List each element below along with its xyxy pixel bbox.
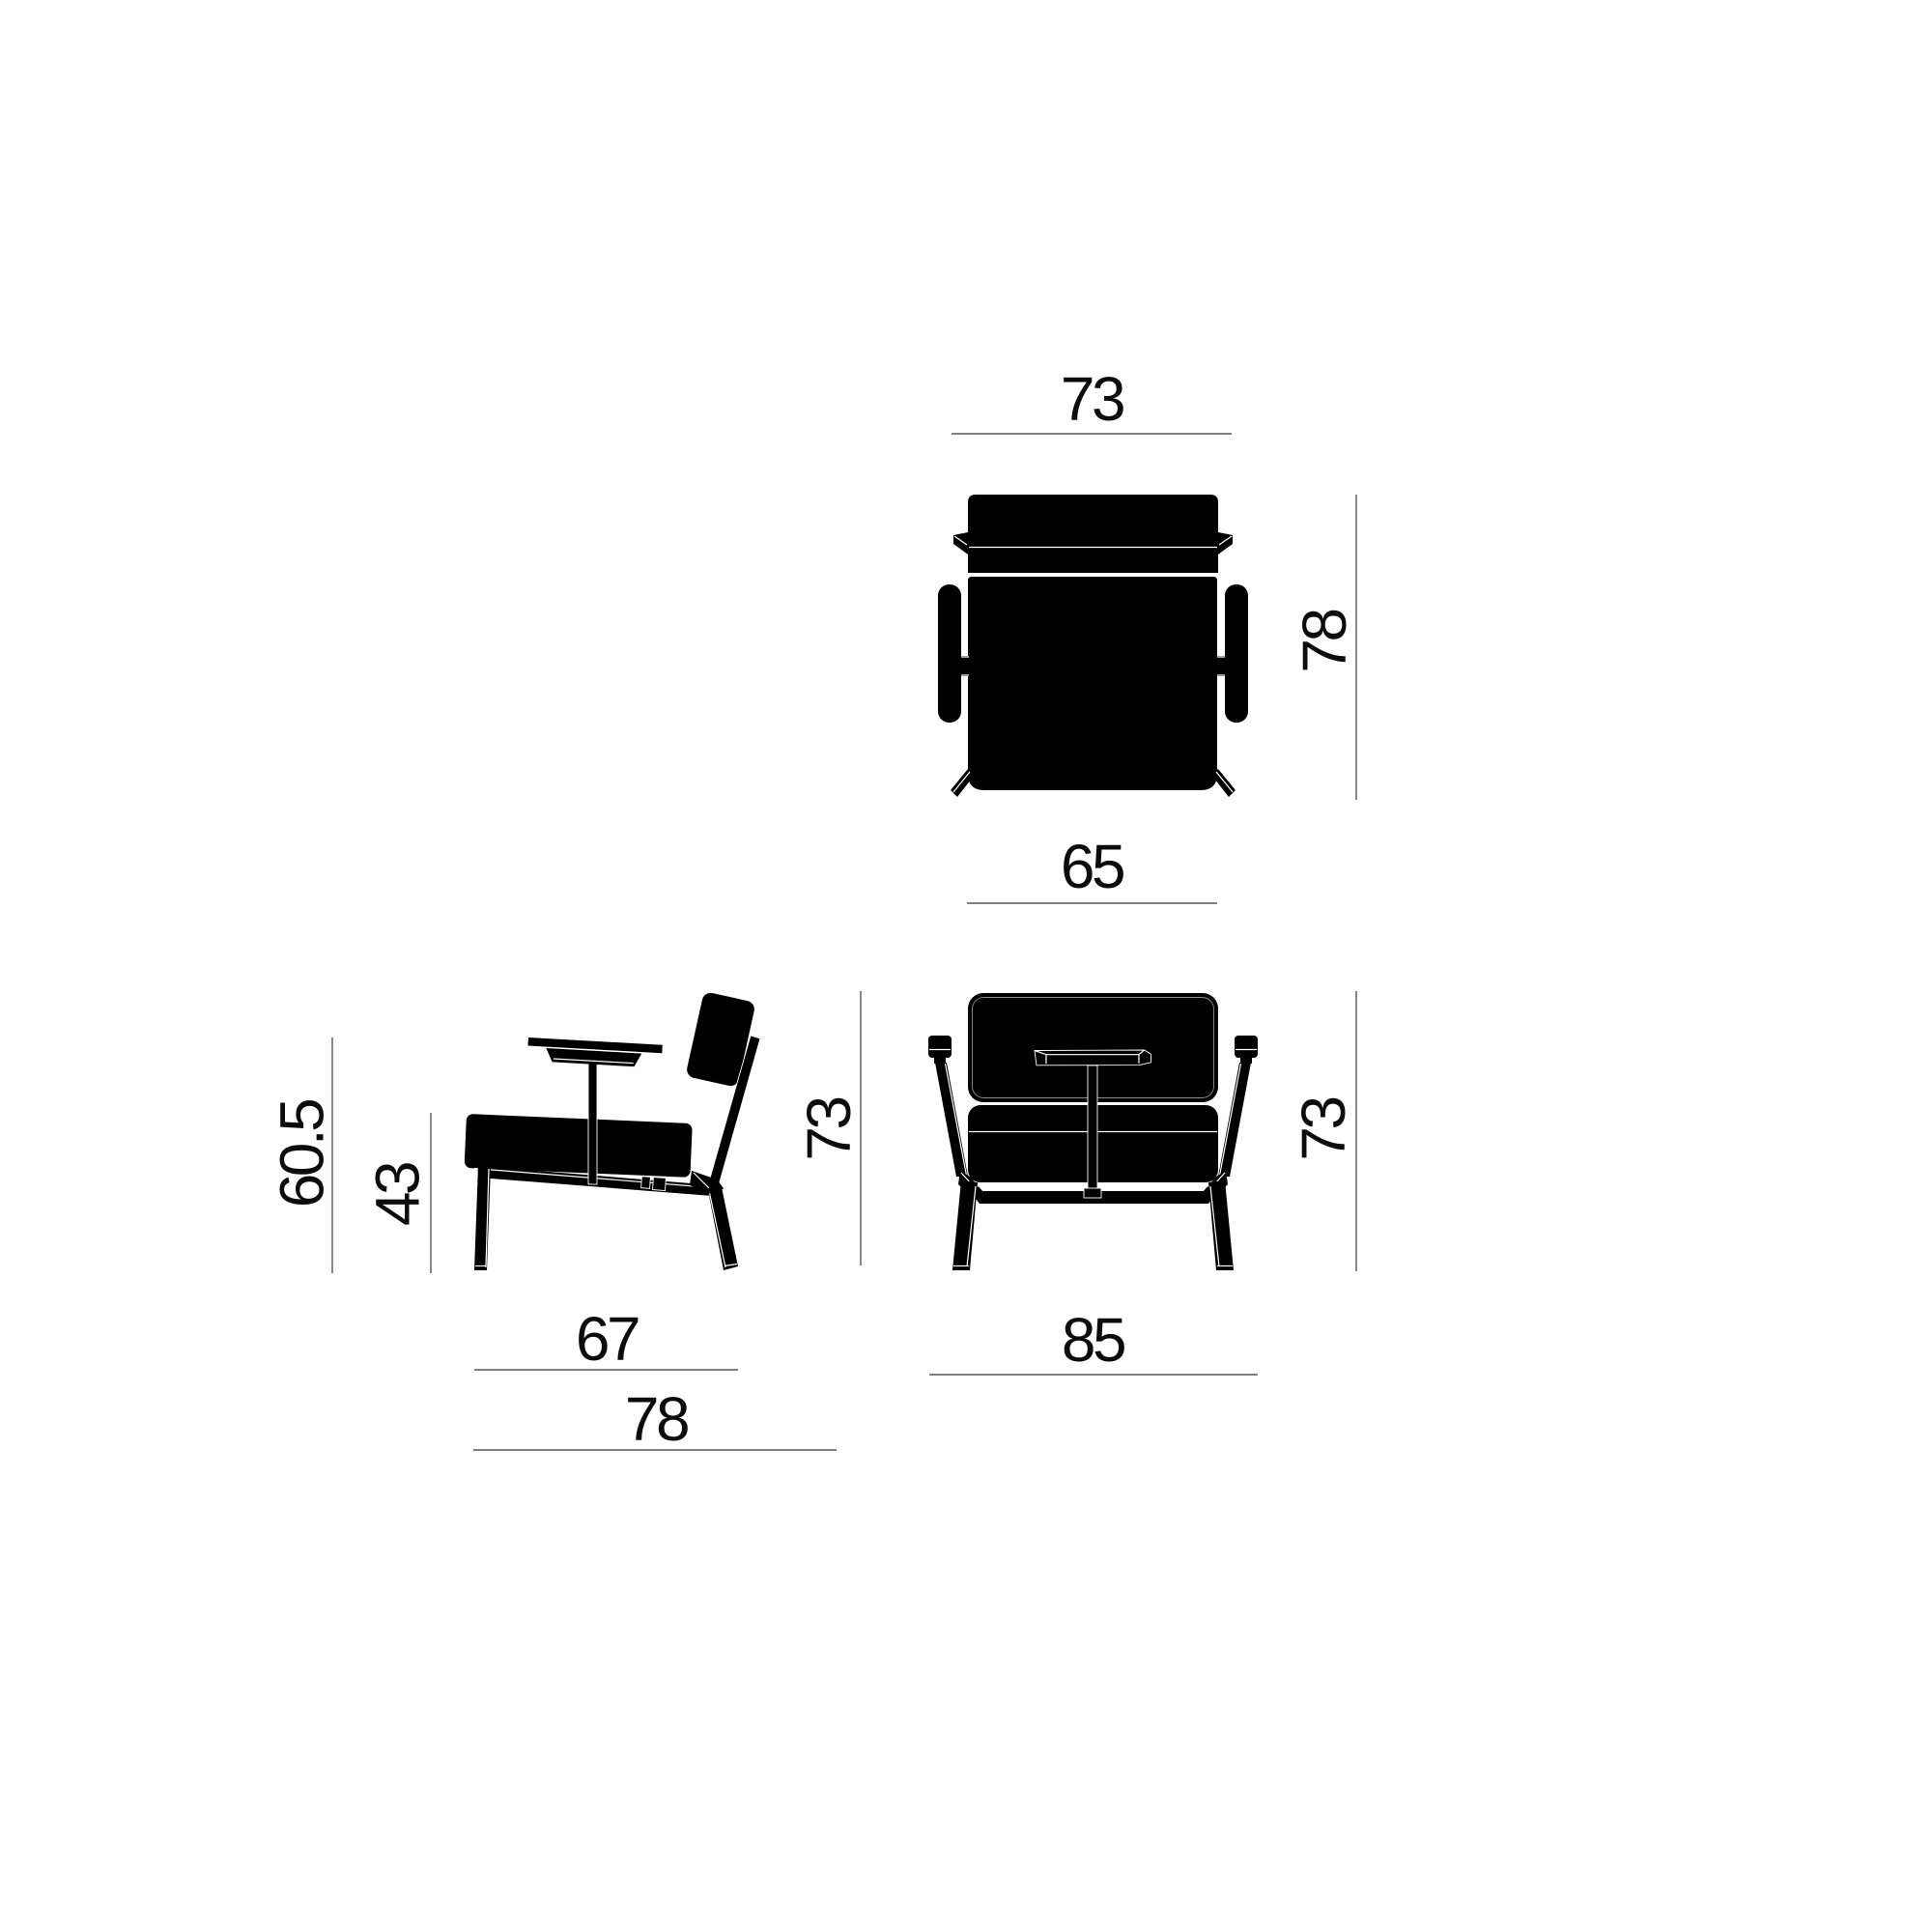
svg-text:78: 78 xyxy=(1290,611,1359,673)
svg-text:73: 73 xyxy=(1289,1098,1358,1161)
svg-text:73: 73 xyxy=(1061,364,1123,434)
svg-text:60.5: 60.5 xyxy=(268,1100,337,1207)
svg-text:67: 67 xyxy=(576,1304,639,1374)
svg-text:85: 85 xyxy=(1062,1305,1124,1375)
svg-text:78: 78 xyxy=(625,1384,688,1454)
svg-text:43: 43 xyxy=(363,1163,433,1226)
svg-text:73: 73 xyxy=(794,1098,864,1161)
svg-text:65: 65 xyxy=(1061,832,1123,901)
